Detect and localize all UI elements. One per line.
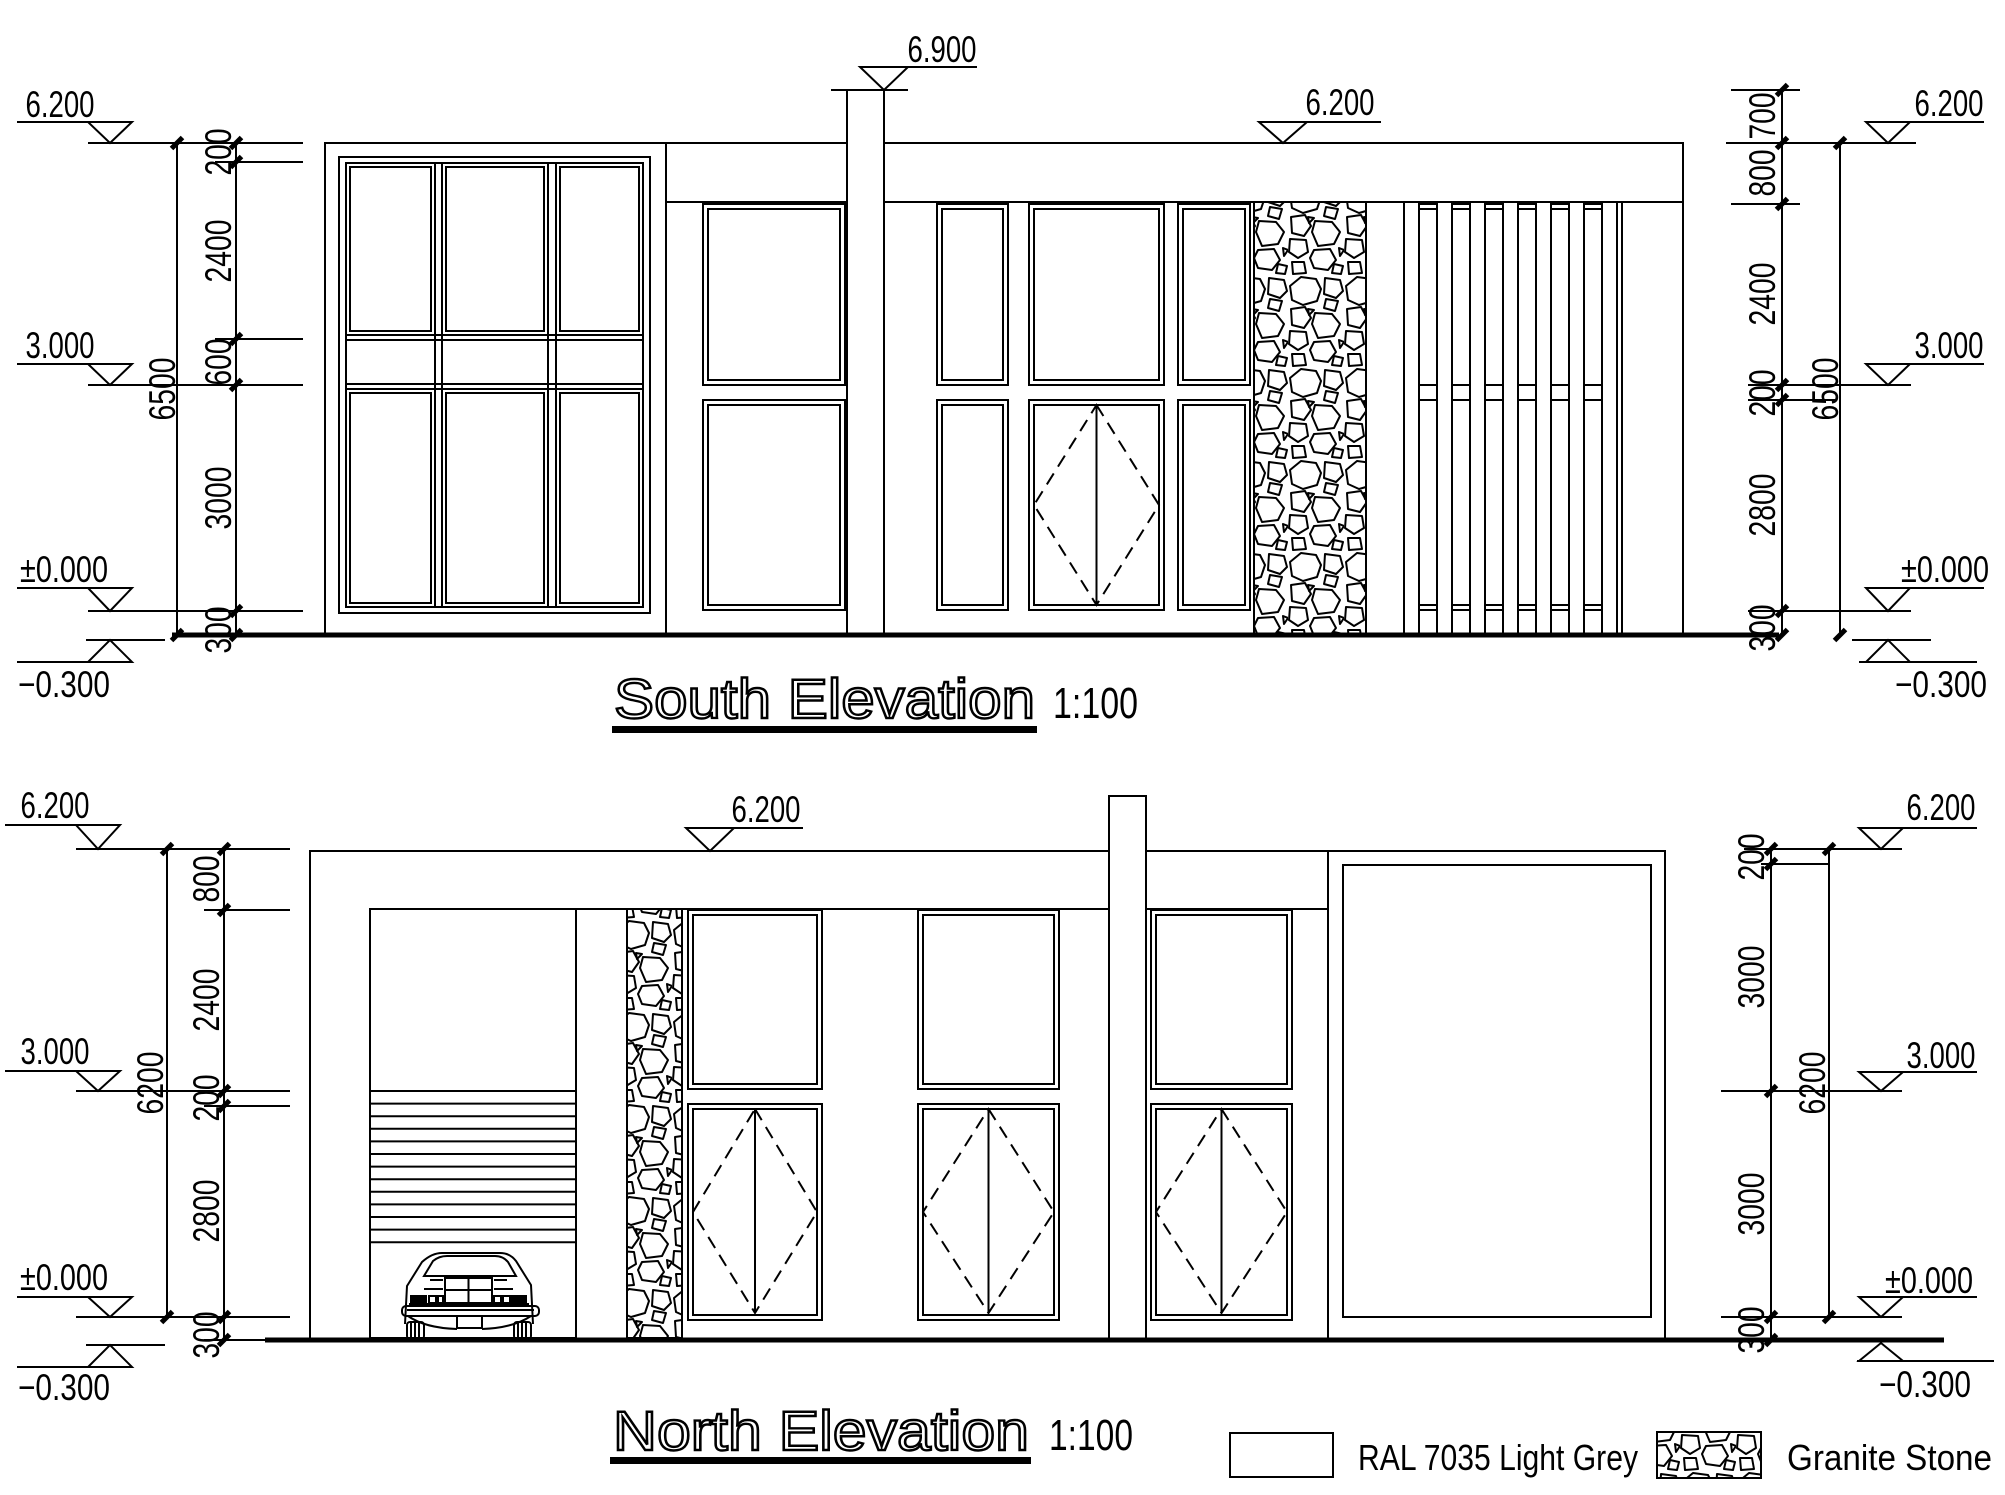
svg-text:3.000: 3.000 [21, 1031, 90, 1072]
svg-text:RAL 7035 Light Grey: RAL 7035 Light Grey [1358, 1437, 1638, 1478]
svg-text:200: 200 [186, 1075, 227, 1122]
svg-text:300: 300 [1731, 1307, 1772, 1354]
svg-text:1:100: 1:100 [1049, 1411, 1133, 1460]
svg-text:800: 800 [186, 856, 227, 903]
svg-text:300: 300 [1742, 605, 1783, 652]
svg-text:6500: 6500 [142, 358, 183, 421]
svg-text:−0.300: −0.300 [1879, 1364, 1971, 1405]
svg-text:3.000: 3.000 [1915, 325, 1984, 366]
svg-text:North Elevation: North Elevation [613, 1399, 1029, 1462]
svg-text:3000: 3000 [198, 467, 239, 530]
svg-text:±0.000: ±0.000 [1885, 1260, 1973, 1301]
svg-text:2800: 2800 [1742, 474, 1783, 537]
svg-text:6200: 6200 [1792, 1052, 1833, 1115]
svg-text:±0.000: ±0.000 [1901, 549, 1989, 590]
svg-text:−0.300: −0.300 [1895, 664, 1987, 705]
svg-text:1:100: 1:100 [1053, 679, 1138, 728]
svg-text:3000: 3000 [1731, 946, 1772, 1009]
svg-text:3.000: 3.000 [26, 325, 95, 366]
svg-text:6.200: 6.200 [1306, 82, 1375, 123]
svg-text:200: 200 [1742, 370, 1783, 417]
svg-text:2400: 2400 [186, 969, 227, 1032]
svg-text:300: 300 [186, 1312, 227, 1359]
svg-text:2400: 2400 [1742, 263, 1783, 326]
svg-text:6.200: 6.200 [26, 84, 95, 125]
svg-text:600: 600 [198, 339, 239, 386]
svg-text:2400: 2400 [198, 220, 239, 283]
svg-text:6.200: 6.200 [21, 785, 90, 826]
svg-text:6.200: 6.200 [732, 789, 801, 830]
svg-text:−0.300: −0.300 [18, 664, 110, 705]
svg-text:6200: 6200 [130, 1052, 171, 1115]
svg-text:6.900: 6.900 [908, 29, 977, 70]
svg-text:2800: 2800 [186, 1180, 227, 1243]
svg-text:−0.300: −0.300 [18, 1367, 110, 1408]
svg-text:3000: 3000 [1731, 1173, 1772, 1236]
svg-text:±0.000: ±0.000 [20, 549, 108, 590]
svg-text:South Elevation: South Elevation [614, 667, 1035, 730]
svg-text:6500: 6500 [1805, 358, 1846, 421]
svg-text:200: 200 [1731, 834, 1772, 881]
svg-text:200: 200 [198, 129, 239, 176]
svg-text:Granite Stone: Granite Stone [1787, 1437, 1992, 1478]
svg-text:6.200: 6.200 [1915, 83, 1984, 124]
svg-text:700: 700 [1742, 93, 1783, 140]
svg-text:6.200: 6.200 [1907, 787, 1976, 828]
svg-text:300: 300 [198, 607, 239, 654]
svg-text:800: 800 [1742, 150, 1783, 197]
svg-text:3.000: 3.000 [1907, 1035, 1976, 1076]
svg-text:±0.000: ±0.000 [20, 1257, 108, 1298]
